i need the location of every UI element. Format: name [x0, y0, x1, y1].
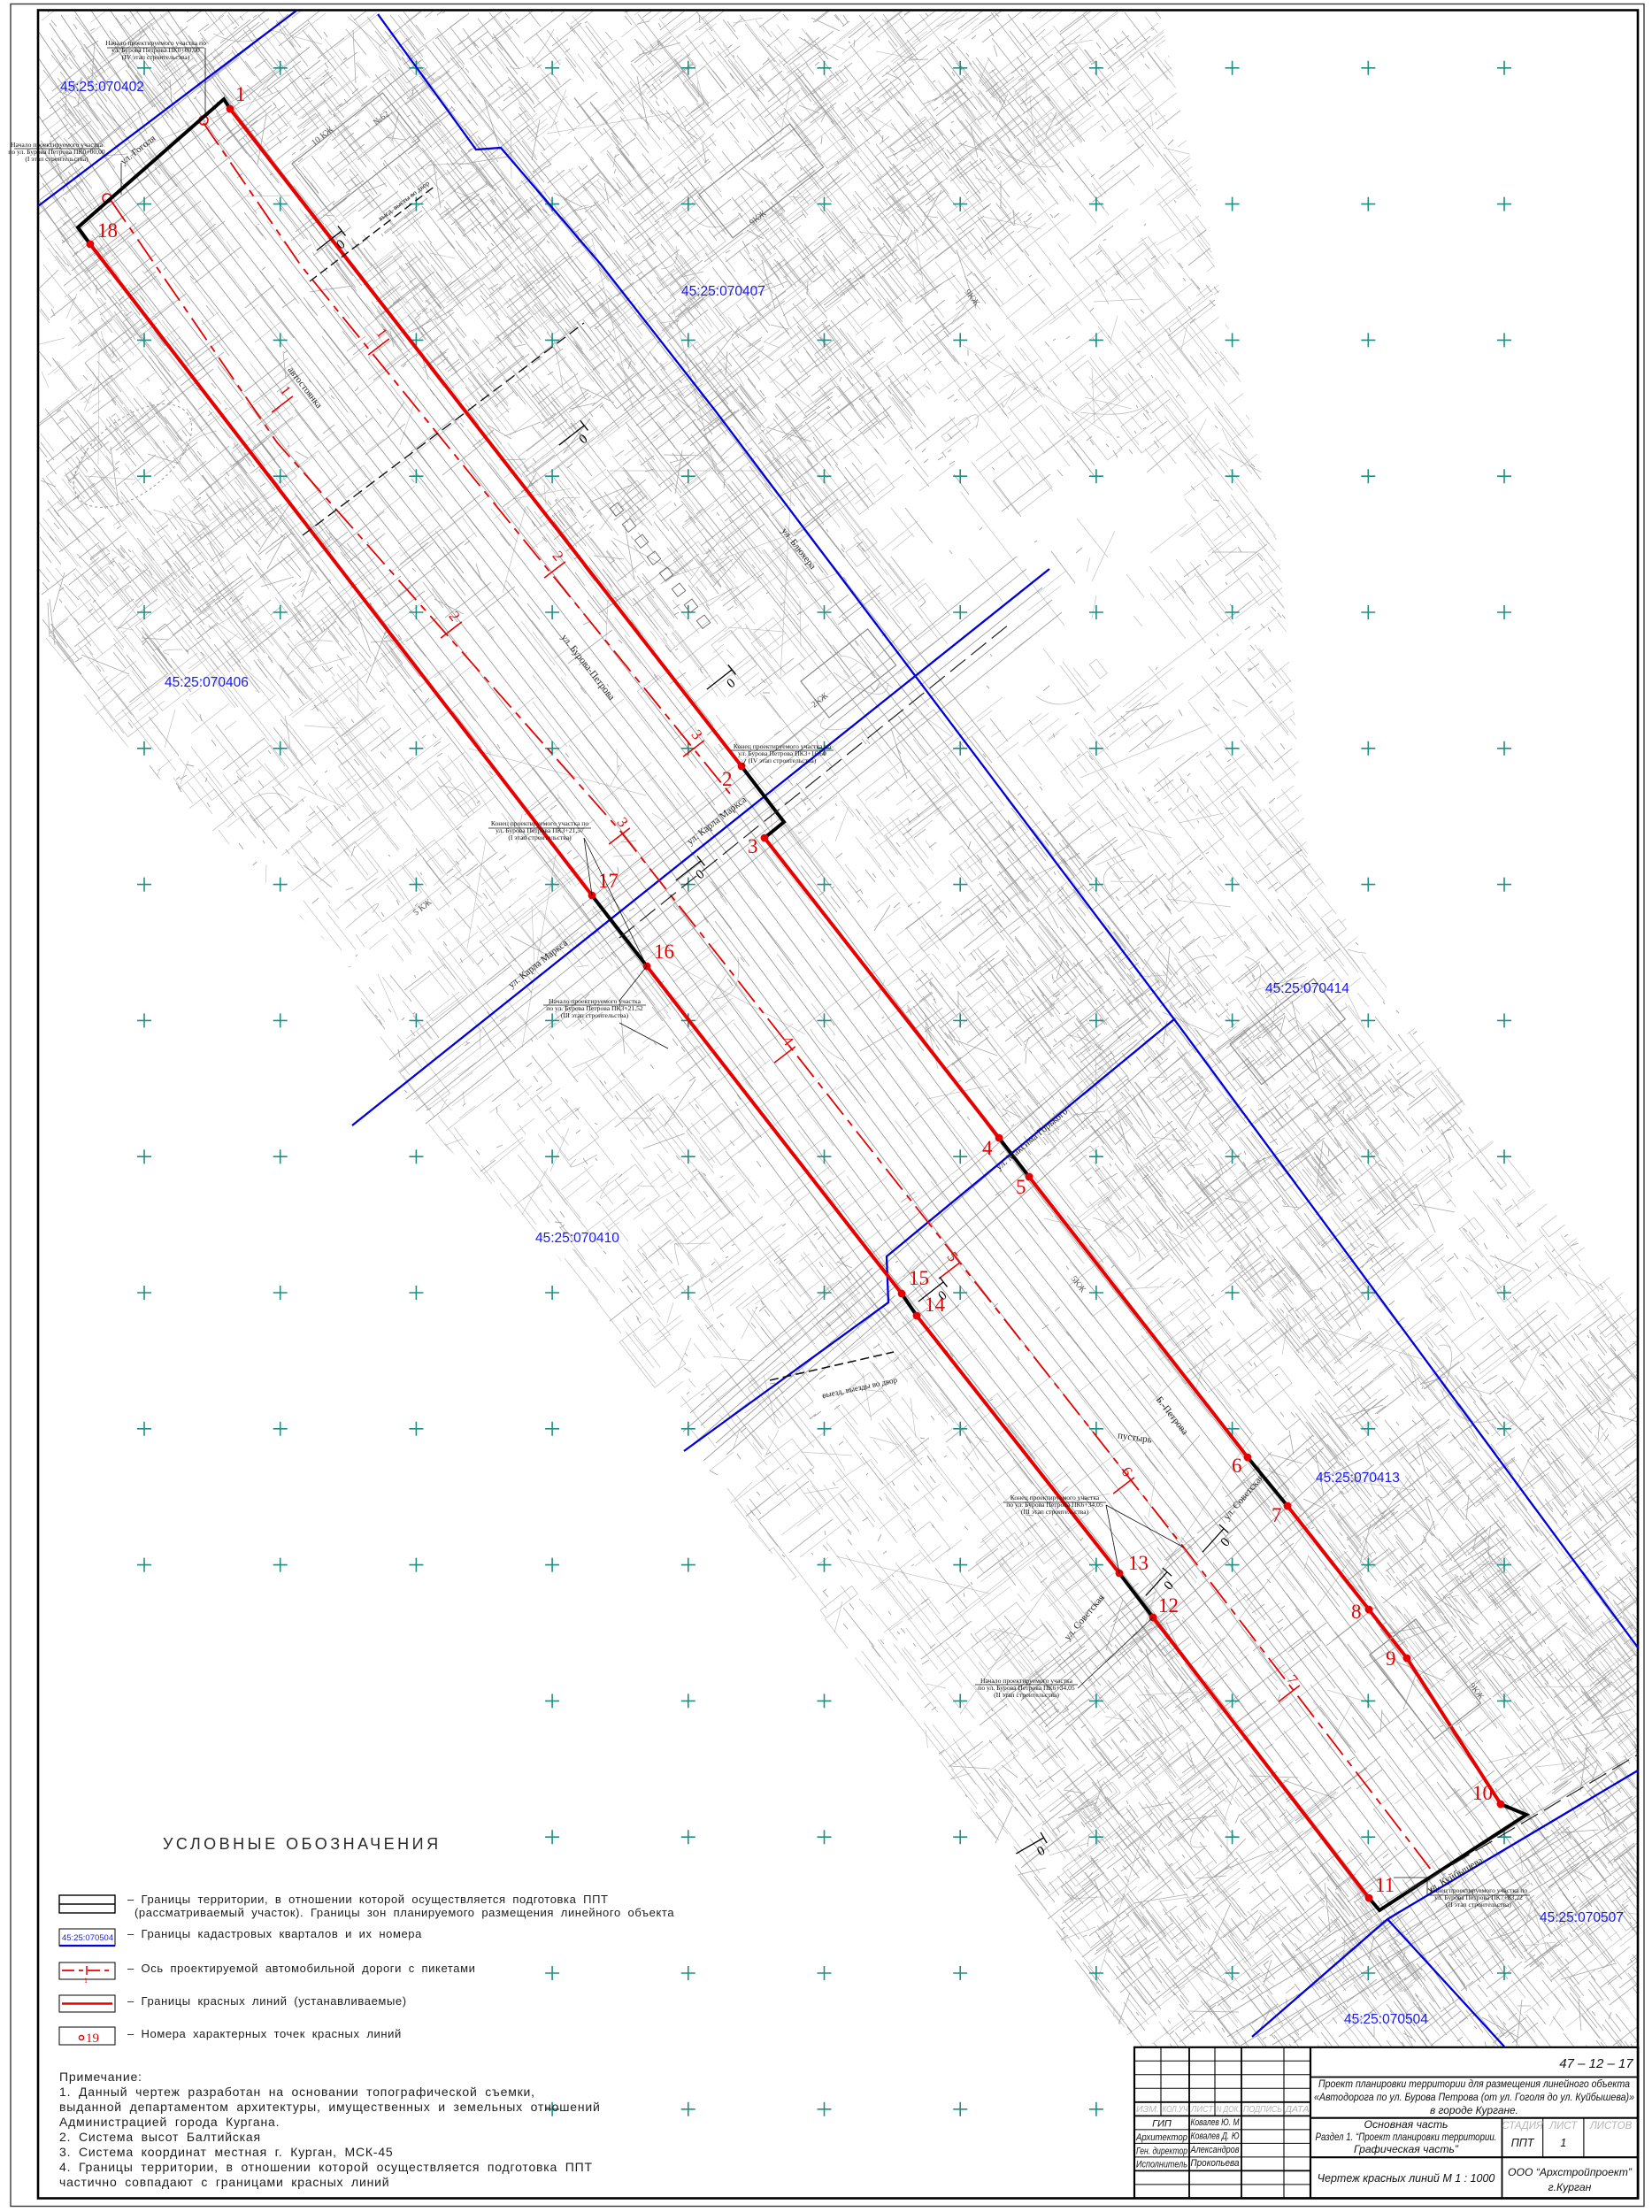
svg-text:45:25:070504: 45:25:070504 [62, 1933, 113, 1943]
svg-text:Ковалев Ю. М: Ковалев Ю. М [1191, 2117, 1241, 2128]
svg-text:– Ось проектируемой автомобиль: – Ось проектируемой автомобильной дороги… [127, 1962, 476, 1975]
svg-text:1. Данный чертеж разработан на: 1. Данный чертеж разработан на основании… [59, 2085, 535, 2099]
svg-text:ЛИСТ: ЛИСТ [1548, 2121, 1578, 2131]
svg-text:13: 13 [1128, 1552, 1149, 1574]
svg-text:(II этап строительства): (II этап строительства) [994, 1691, 1059, 1699]
svg-text:(I этап строительства): (I этап строительства) [25, 155, 88, 163]
svg-text:(II этап строительства): (II этап строительства) [1446, 1901, 1511, 1909]
svg-text:3. Система координат местная г: 3. Система координат местная г. Курган, … [59, 2145, 394, 2159]
svg-text:2. Система высот Балтийская: 2. Система высот Балтийская [59, 2130, 261, 2144]
svg-text:2: 2 [722, 768, 733, 790]
svg-text:12: 12 [1158, 1594, 1179, 1617]
svg-text:6: 6 [1232, 1455, 1242, 1477]
svg-text:15: 15 [909, 1267, 929, 1289]
svg-text:45:25:070402: 45:25:070402 [60, 80, 144, 95]
svg-text:– Границы кадастровых квартало: – Границы кадастровых кварталов и их ном… [127, 1927, 422, 1940]
svg-text:Примечание:: Примечание: [59, 2070, 142, 2084]
svg-text:Ковалев Д. Ю: Ковалев Д. Ю [1191, 2131, 1240, 2142]
svg-text:ЛИСТ: ЛИСТ [1190, 2105, 1214, 2115]
svg-text:Чертеж красных линий М 1 : 100: Чертеж красных линий М 1 : 1000 [1318, 2172, 1495, 2185]
svg-text:45:25:070406: 45:25:070406 [165, 675, 249, 690]
svg-text:45:25:070507: 45:25:070507 [1540, 1910, 1624, 1925]
svg-text:7: 7 [1272, 1504, 1282, 1526]
svg-text:выданной департаментом архитек: выданной департаментом архитектуры, имущ… [59, 2100, 601, 2114]
svg-text:18: 18 [97, 219, 118, 242]
svg-text:1: 1 [235, 83, 246, 105]
svg-text:N ДОК.: N ДОК. [1217, 2105, 1241, 2115]
svg-text:ГИП: ГИП [1152, 2119, 1172, 2130]
svg-text:4. Границы территории, в отнош: 4. Границы территории, в отношении котор… [59, 2160, 593, 2174]
svg-text:45:25:070504: 45:25:070504 [1344, 2012, 1428, 2027]
svg-text:5: 5 [1016, 1176, 1026, 1198]
svg-text:Александров: Александров [1190, 2145, 1240, 2155]
svg-text:Прокопьева: Прокопьева [1191, 2158, 1240, 2169]
svg-text:(IV этап строительства): (IV этап строительства) [749, 757, 817, 764]
svg-text:ППТ: ППТ [1511, 2137, 1535, 2149]
svg-text:(IV этап строительства): (IV этап строительства) [122, 53, 190, 61]
svg-text:19: 19 [86, 2032, 99, 2046]
svg-text:45:25:070413: 45:25:070413 [1316, 1471, 1400, 1486]
svg-text:45:25:070407: 45:25:070407 [681, 284, 765, 299]
svg-text:– Границы красных линий (устан: – Границы красных линий (устанавливаемые… [127, 1994, 407, 2008]
svg-text:16: 16 [654, 941, 674, 963]
svg-text:10: 10 [1472, 1782, 1493, 1804]
svg-text:ПОДПИСЬ: ПОДПИСЬ [1243, 2105, 1282, 2115]
svg-text:ДАТА: ДАТА [1284, 2105, 1309, 2115]
svg-text:9: 9 [1386, 1647, 1396, 1670]
svg-text:УСЛОВНЫЕ ОБОЗНАЧЕНИЯ: УСЛОВНЫЕ ОБОЗНАЧЕНИЯ [163, 1835, 442, 1853]
svg-text:47 – 12 – 17: 47 – 12 – 17 [1559, 2056, 1633, 2071]
svg-text:45:25:070414: 45:25:070414 [1265, 981, 1349, 996]
svg-text:Основная часть: Основная часть [1364, 2118, 1448, 2131]
svg-text:1: 1 [1560, 2137, 1566, 2149]
svg-text:в городе Кургане.: в городе Кургане. [1430, 2104, 1518, 2116]
svg-text:ИЗМ.: ИЗМ. [1136, 2105, 1159, 2115]
svg-text:Исполнитель: Исполнитель [1136, 2160, 1187, 2170]
svg-text:Архитектор: Архитектор [1135, 2132, 1187, 2143]
svg-text:Проект планировки территории д: Проект планировки территории для размеще… [1318, 2078, 1630, 2090]
svg-text:СТАДИЯ: СТАДИЯ [1502, 2121, 1543, 2131]
svg-text:«Автодорога по ул. Бурова Петр: «Автодорога по ул. Бурова Петрова (от ул… [1314, 2091, 1634, 2103]
svg-text:3: 3 [748, 835, 758, 857]
svg-text:4: 4 [982, 1137, 993, 1159]
svg-text:частично совпадают с границами: частично совпадают с границами красных л… [59, 2175, 389, 2189]
svg-text:ООО “Архстройпроект”: ООО “Архстройпроект” [1508, 2166, 1633, 2178]
svg-text:КОЛ.УЧ: КОЛ.УЧ [1163, 2105, 1188, 2115]
svg-text:(III этап строительства): (III этап строительства) [1021, 1508, 1089, 1516]
svg-text:(III этап строительства): (III этап строительства) [561, 1011, 629, 1019]
svg-text:ЛИСТОВ: ЛИСТОВ [1589, 2121, 1633, 2131]
svg-text:г.Курган: г.Курган [1548, 2181, 1592, 2193]
svg-text:Графическая часть”: Графическая часть” [1354, 2143, 1459, 2155]
svg-text:1: 1 [84, 1977, 88, 1985]
svg-text:Ген. директор: Ген. директор [1136, 2147, 1187, 2157]
svg-text:45:25:070410: 45:25:070410 [535, 1231, 619, 1246]
svg-text:(рассматриваемый участок). Гра: (рассматриваемый участок). Границы зон п… [134, 1906, 674, 1919]
svg-text:Раздел 1. “Проект планировки т: Раздел 1. “Проект планировки территории. [1316, 2131, 1497, 2143]
svg-text:– Номера характерных точек кра: – Номера характерных точек красных линий [127, 2027, 402, 2040]
svg-text:8: 8 [1351, 1601, 1362, 1623]
svg-text:– Границы территории, в отноше: – Границы территории, в отношении которо… [127, 1893, 609, 1906]
svg-text:11: 11 [1375, 1874, 1395, 1896]
svg-text:(I этап строительства): (I этап строительства) [508, 833, 572, 841]
svg-text:Администрацией города Кургана.: Администрацией города Кургана. [59, 2115, 280, 2129]
